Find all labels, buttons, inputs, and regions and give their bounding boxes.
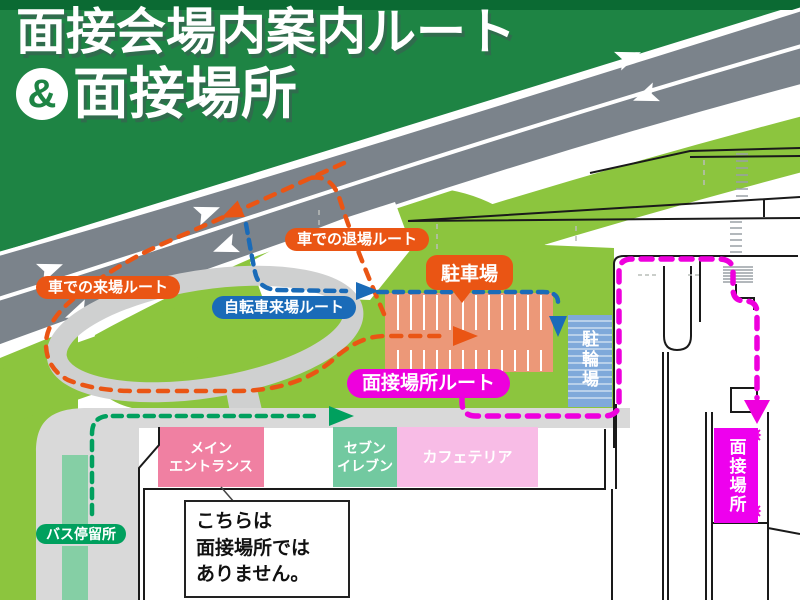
label-car-exit-route: 車での退場ルート: [285, 228, 429, 251]
label-main-entrance-line1: メイン: [158, 440, 264, 458]
front-building-left-wall: [139, 427, 159, 600]
label-car-arrival-route: 車での来場ルート: [36, 276, 180, 299]
interview-venue-map: 面接会場内案内ルート & 面接場所 車での来場ルート 車での退場ルート 自転車来…: [0, 0, 800, 600]
label-main-entrance: メイン エントランス: [158, 440, 264, 475]
bus-platform: [62, 546, 88, 600]
callout-line2: 面接場所では: [196, 536, 338, 563]
label-cafeteria: カフェテリア: [397, 449, 538, 468]
label-bicycle-parking: 駐輪場: [576, 330, 601, 390]
interview-location-box: 面接場所: [714, 428, 758, 523]
title-line2-text: 面接場所: [73, 65, 297, 124]
title-line2: & 面接場所: [16, 65, 516, 124]
corridor-walls: [612, 352, 800, 600]
callout-line1: こちらは: [196, 509, 338, 536]
label-interview-location: 面接場所: [724, 438, 749, 514]
callout-line3: ありません。: [196, 562, 338, 589]
label-seven-eleven-line1: セブン: [333, 440, 397, 458]
bus-platform: [62, 455, 88, 531]
not-interview-location-callout: こちらは 面接場所では ありません。: [184, 500, 350, 598]
label-interview-route: 面接場所ルート: [347, 369, 510, 398]
label-parking: 駐車場: [426, 255, 513, 290]
label-bus-stop: バス停留所: [36, 524, 126, 544]
label-main-entrance-line2: エントランス: [158, 458, 264, 476]
ampersand-circle-icon: &: [16, 68, 68, 120]
label-seven-eleven: セブン イレブン: [333, 440, 397, 475]
title-line1: 面接会場内案内ルート: [16, 6, 516, 59]
page-title: 面接会場内案内ルート & 面接場所: [16, 6, 516, 123]
label-seven-eleven-line2: イレブン: [333, 458, 397, 476]
upper-building-bar: [664, 266, 691, 350]
label-bicycle-route: 自転車来場ルート: [212, 296, 356, 319]
